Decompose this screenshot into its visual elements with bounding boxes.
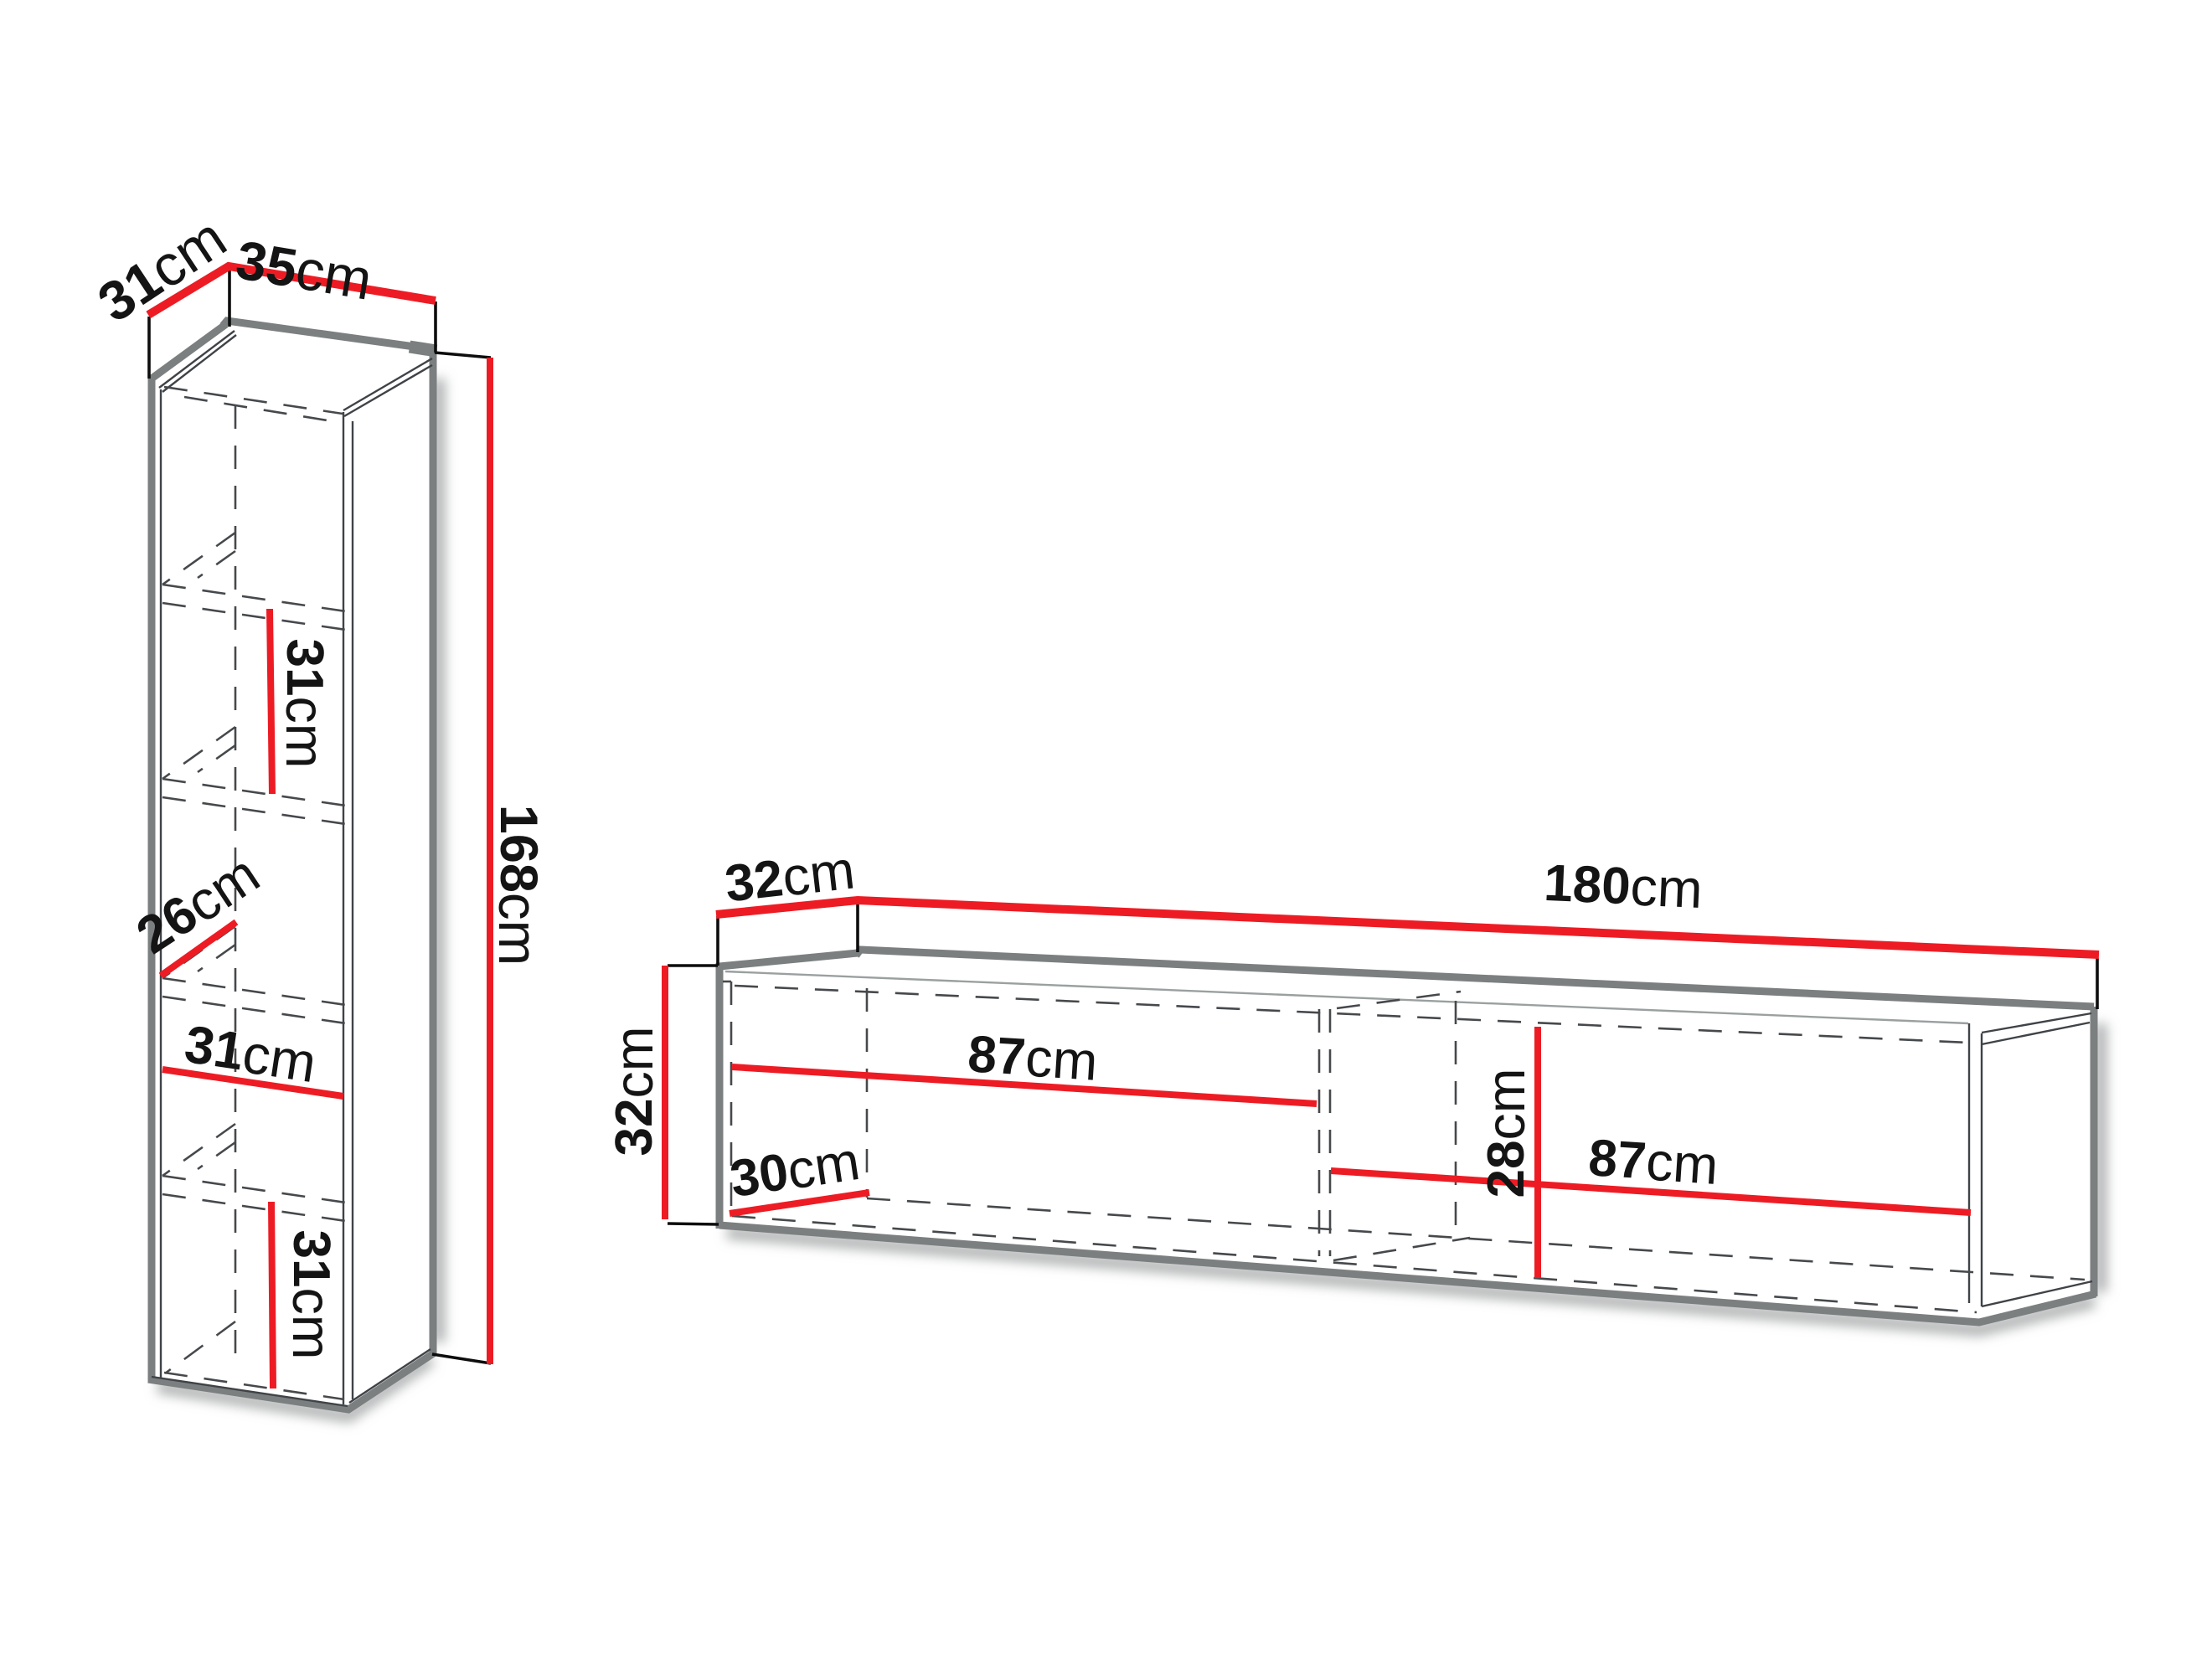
svg-text:31cm: 31cm (281, 1230, 342, 1360)
svg-text:31cm: 31cm (86, 204, 237, 334)
svg-text:35cm: 35cm (232, 228, 377, 312)
svg-text:168cm: 168cm (488, 805, 549, 966)
svg-text:32cm: 32cm (604, 1027, 664, 1157)
svg-text:87cm: 87cm (1586, 1127, 1720, 1196)
svg-text:28cm: 28cm (1476, 1069, 1536, 1198)
svg-text:31cm: 31cm (275, 639, 335, 769)
svg-text:87cm: 87cm (966, 1023, 1099, 1092)
svg-text:180cm: 180cm (1543, 853, 1704, 920)
